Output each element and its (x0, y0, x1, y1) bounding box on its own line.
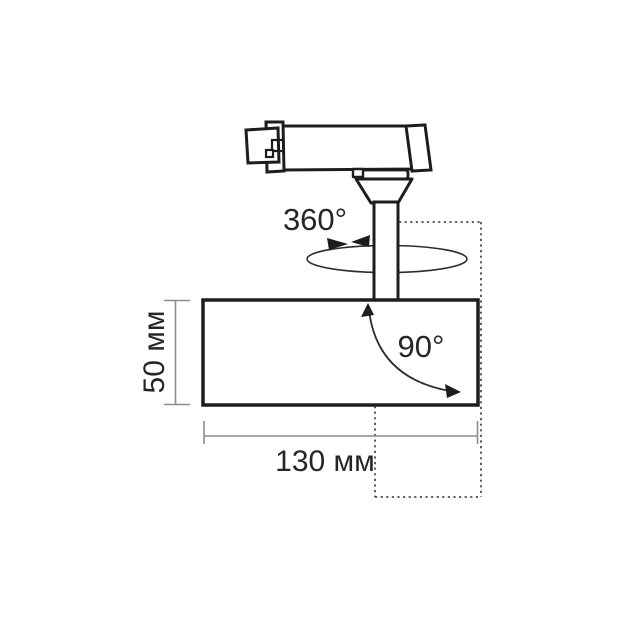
track-light-dimension-diagram: 360° 90° 50 мм 130 мм (0, 0, 630, 630)
rotation-arrow-left-icon (351, 235, 370, 247)
knuckle-cone (356, 179, 412, 203)
tilt-90-label: 90° (398, 329, 445, 364)
stem (374, 202, 398, 301)
mounting-knuckle (353, 169, 412, 203)
track-adapter-body (281, 126, 421, 170)
height-label: 50 мм (138, 311, 171, 394)
width-label: 130 мм (275, 445, 375, 478)
width-dimension (204, 421, 478, 444)
track-lock-pin (266, 150, 273, 157)
track-adapter-right-cap (406, 125, 431, 171)
diagram-canvas: 360° 90° 50 мм 130 мм (0, 0, 630, 630)
knuckle-tab (353, 169, 363, 177)
track-adapter (246, 122, 431, 172)
rotation-360-label: 360° (283, 202, 347, 237)
